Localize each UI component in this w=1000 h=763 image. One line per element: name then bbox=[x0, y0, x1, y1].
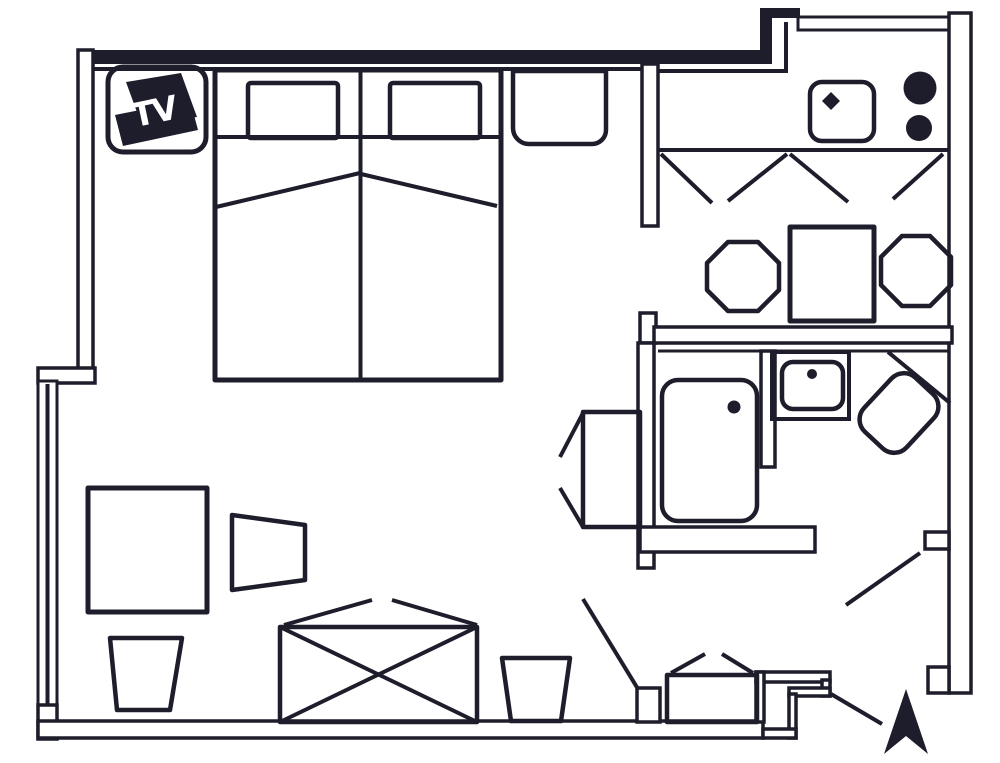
wall-seat-arm-bottom bbox=[560, 488, 583, 527]
luggage-rack bbox=[280, 600, 477, 722]
wall-entry-foot bbox=[928, 667, 949, 693]
cabinet-chevron-4 bbox=[893, 154, 943, 199]
shower-drain bbox=[728, 401, 741, 414]
cabinet-chevron-2 bbox=[728, 154, 787, 201]
wall-entry-jamb-top bbox=[756, 672, 830, 682]
desk bbox=[88, 488, 207, 612]
door-swing-entrance bbox=[831, 694, 882, 724]
wall-top-jog-horizontal bbox=[760, 8, 800, 18]
dining-chair-left bbox=[707, 242, 779, 311]
luggage-rack-lid-right bbox=[392, 600, 477, 625]
floor-plan-drawing: TV bbox=[0, 0, 1000, 763]
shower-tray bbox=[662, 380, 757, 521]
wall-right bbox=[949, 13, 971, 693]
door-swing-hall bbox=[583, 599, 638, 689]
blanket-fold-right bbox=[361, 174, 497, 206]
wall-seat bbox=[560, 412, 640, 527]
wall-seat-body bbox=[583, 412, 640, 527]
bathroom bbox=[662, 352, 950, 521]
window-top bbox=[798, 17, 950, 30]
kitchen-faucet-dot bbox=[822, 92, 840, 110]
dining-chair-right bbox=[881, 236, 951, 306]
cabinet-chevron-1 bbox=[661, 154, 712, 203]
kitchen-sink bbox=[810, 82, 874, 141]
bedside-bench bbox=[513, 71, 606, 144]
wall-bathroom-door-stub bbox=[925, 532, 949, 549]
luggage-rack-lid-left bbox=[284, 600, 372, 625]
pillow-left bbox=[248, 83, 338, 138]
wall-top bbox=[80, 50, 772, 64]
wall-divider-kitchen bbox=[642, 64, 658, 226]
wall-entry-bottom-close bbox=[763, 729, 796, 738]
wastebasket-right bbox=[502, 658, 570, 721]
cabinet-chevron-3 bbox=[790, 154, 848, 202]
double-bed bbox=[215, 70, 501, 380]
wall-seat-arm-top bbox=[560, 413, 583, 457]
wall-hall-pier bbox=[637, 688, 660, 722]
door-swing-bathroom bbox=[846, 553, 920, 605]
toilet bbox=[853, 366, 946, 460]
wall-dining-bathroom bbox=[654, 327, 952, 343]
floor-plan: TV bbox=[0, 0, 1000, 763]
hall-bench-lid-left bbox=[671, 654, 705, 673]
pillow-right bbox=[390, 83, 480, 138]
wall-left-upper bbox=[78, 50, 93, 372]
toilet-corner-line bbox=[888, 352, 950, 403]
hall-bench-body bbox=[667, 675, 757, 722]
hall-bench-lid-right bbox=[722, 654, 753, 673]
desk-chair bbox=[232, 515, 305, 590]
kitchenette bbox=[658, 72, 951, 322]
hob-burner-small bbox=[906, 115, 932, 141]
wastebasket-left bbox=[110, 638, 182, 710]
hob-burner-large bbox=[904, 72, 937, 105]
bathroom-faucet-dot bbox=[807, 369, 817, 379]
dining-table bbox=[790, 227, 874, 321]
hall-bench bbox=[667, 654, 757, 722]
blanket-fold-left bbox=[216, 173, 360, 207]
wall-shower-south bbox=[640, 527, 815, 552]
tv-icon: TV bbox=[108, 67, 206, 152]
entrance-arrow bbox=[884, 689, 928, 754]
